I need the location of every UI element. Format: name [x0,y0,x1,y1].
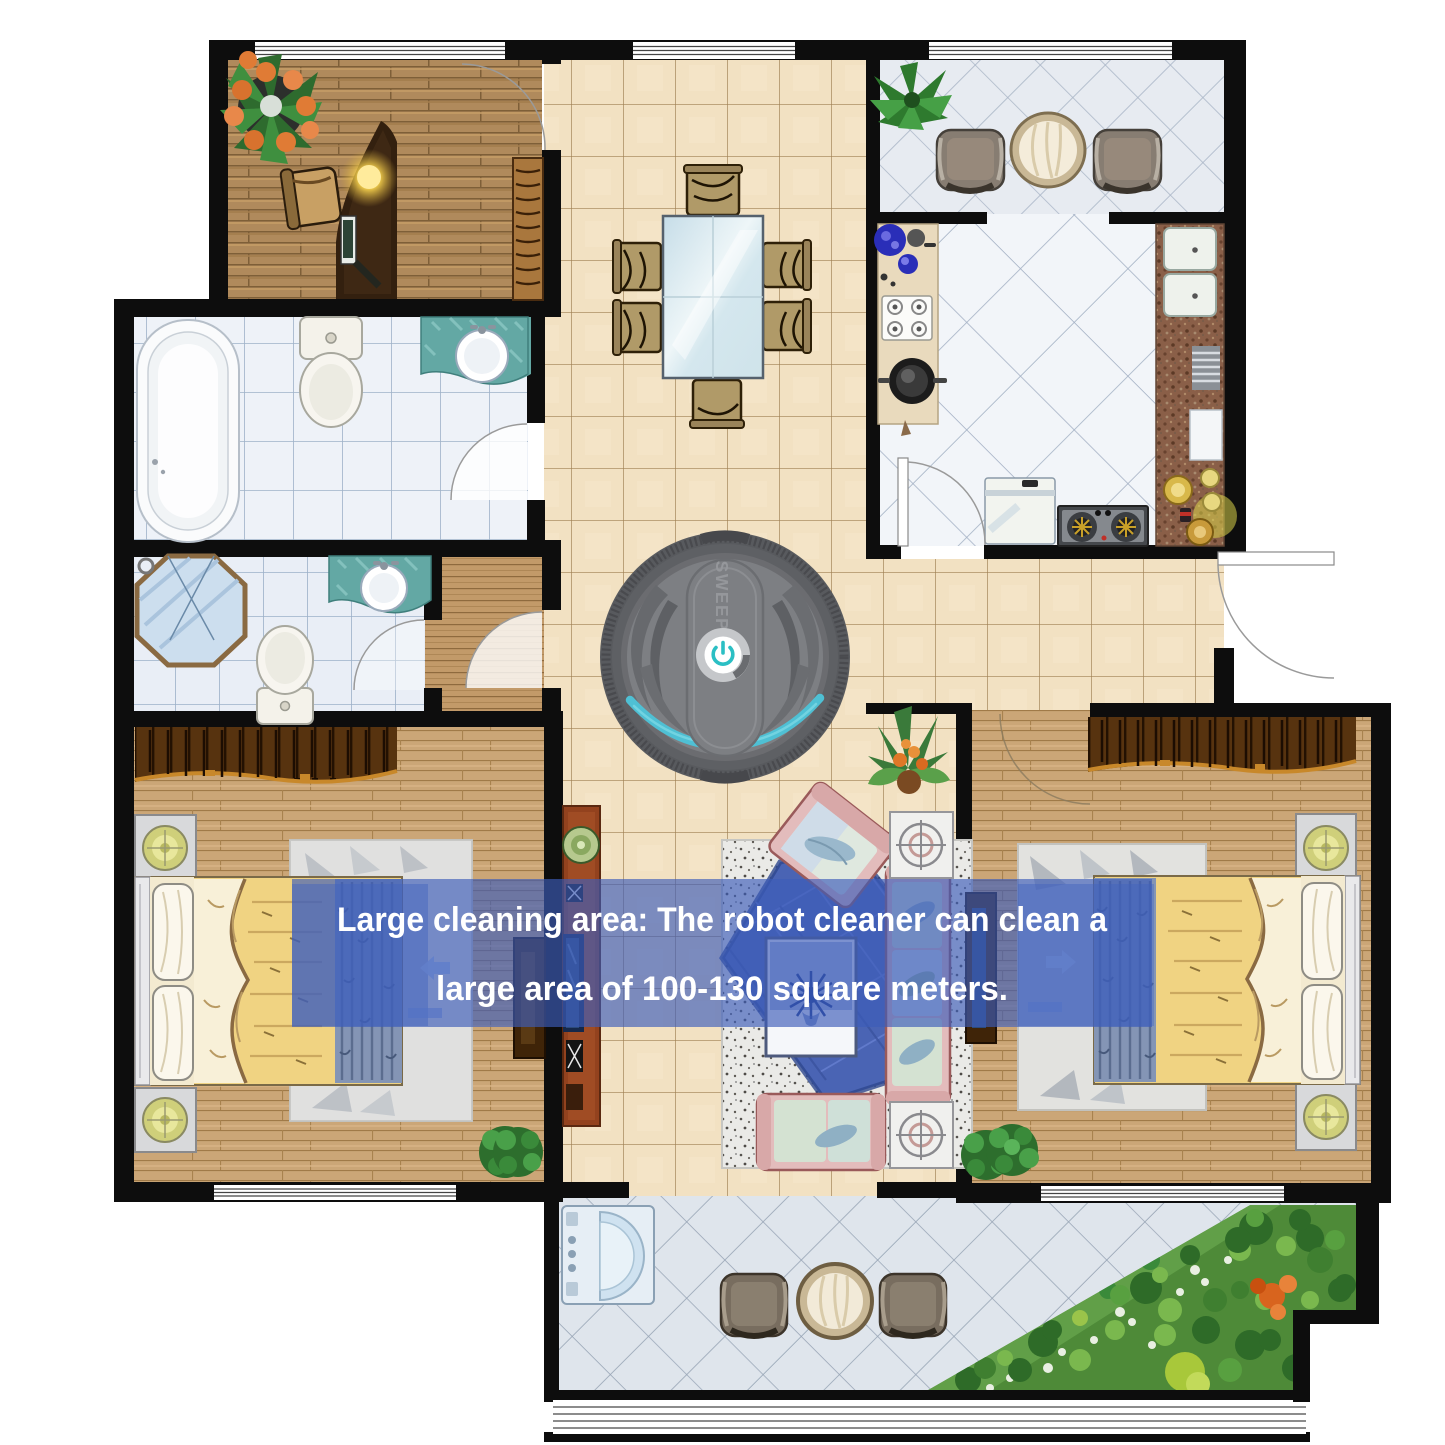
svg-text:SWEEP: SWEEP [712,561,732,632]
svg-text:Large cleaning area: The robot: Large cleaning area: The robot cleaner c… [337,901,1108,939]
svg-text:large area of 100-130 square m: large area of 100-130 square meters. [436,970,1008,1008]
